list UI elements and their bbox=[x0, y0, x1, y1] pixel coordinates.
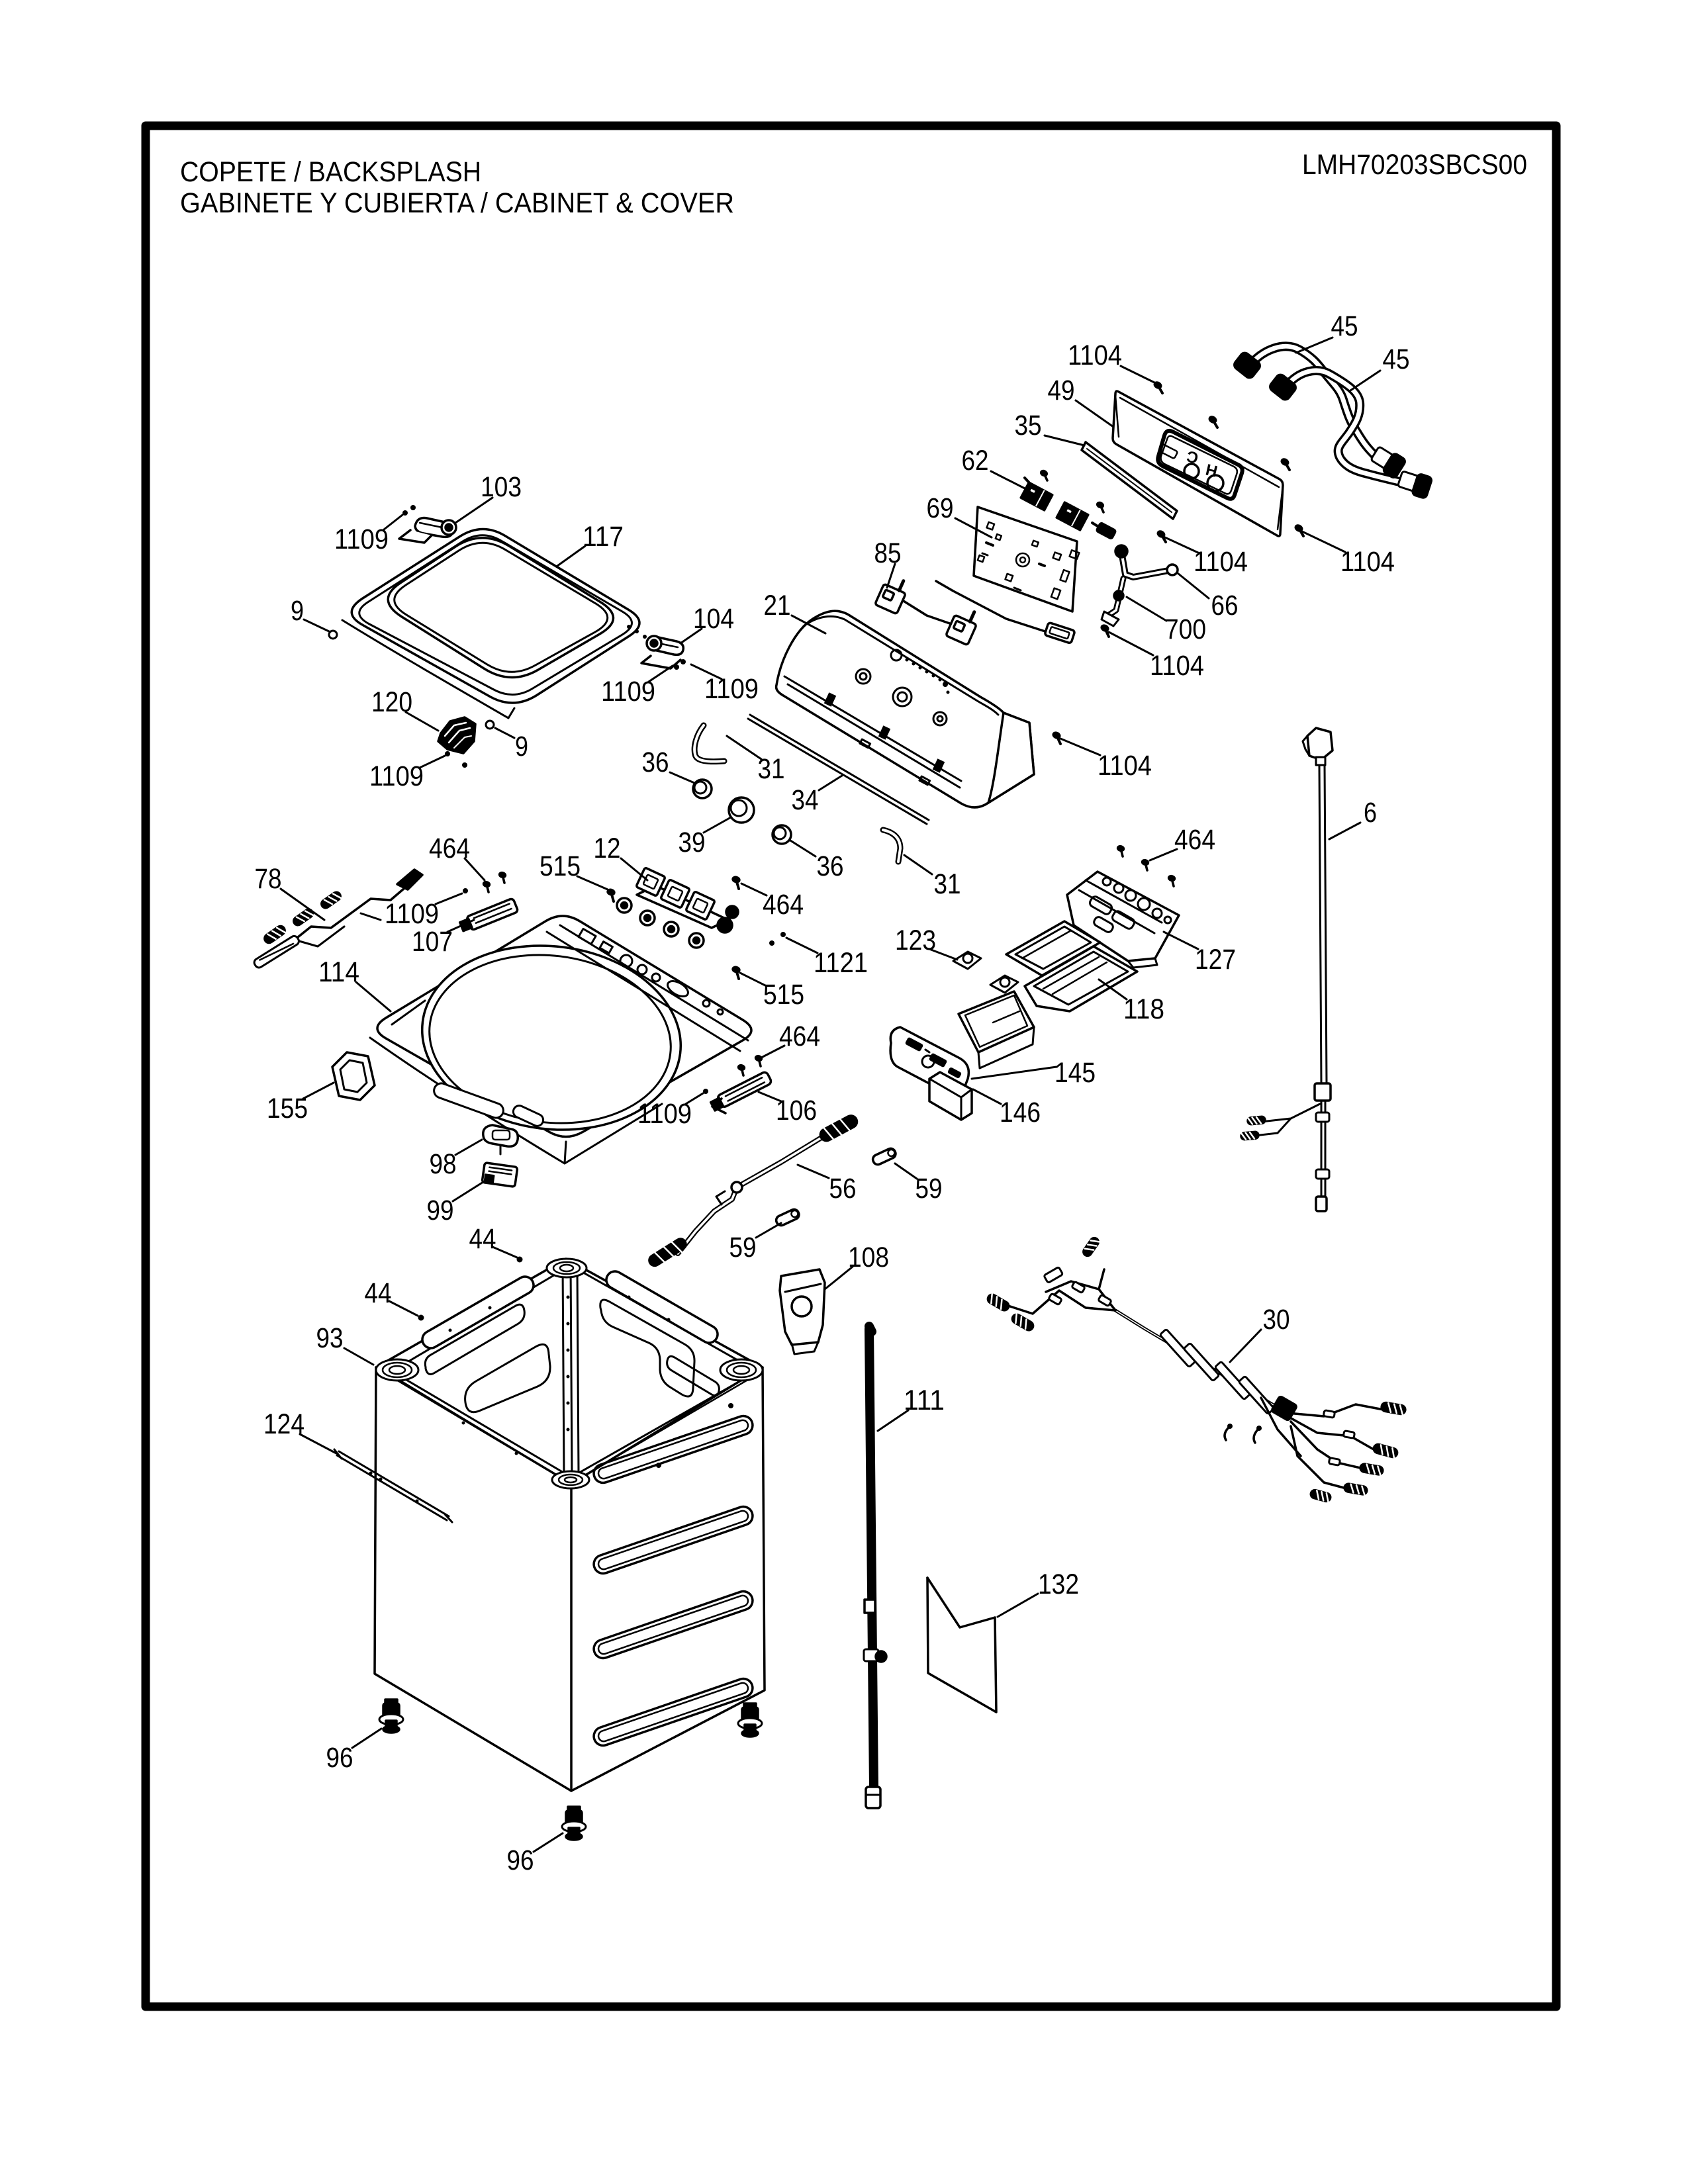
svg-text:132: 132 bbox=[1038, 1569, 1079, 1600]
svg-text:515: 515 bbox=[763, 979, 804, 1011]
svg-text:464: 464 bbox=[1174, 824, 1215, 856]
svg-text:78: 78 bbox=[255, 863, 282, 895]
svg-text:464: 464 bbox=[429, 833, 470, 864]
svg-text:59: 59 bbox=[729, 1232, 757, 1263]
svg-text:LMH70203SBCS00: LMH70203SBCS00 bbox=[1302, 149, 1527, 181]
svg-text:45: 45 bbox=[1383, 343, 1410, 375]
svg-text:9: 9 bbox=[291, 595, 304, 627]
svg-text:85: 85 bbox=[874, 537, 902, 569]
svg-text:21: 21 bbox=[764, 590, 791, 621]
svg-text:56: 56 bbox=[829, 1173, 857, 1205]
svg-text:44: 44 bbox=[365, 1277, 392, 1309]
svg-text:96: 96 bbox=[326, 1742, 353, 1774]
svg-text:44: 44 bbox=[469, 1223, 496, 1255]
svg-text:1104: 1104 bbox=[1150, 650, 1204, 682]
svg-text:114: 114 bbox=[318, 956, 359, 988]
svg-text:1121: 1121 bbox=[814, 947, 868, 979]
svg-text:98: 98 bbox=[430, 1148, 457, 1180]
svg-text:34: 34 bbox=[792, 784, 819, 816]
svg-text:1104: 1104 bbox=[1098, 750, 1152, 782]
svg-text:62: 62 bbox=[962, 445, 989, 477]
svg-text:106: 106 bbox=[776, 1095, 817, 1126]
svg-text:1104: 1104 bbox=[1194, 546, 1248, 578]
svg-text:1104: 1104 bbox=[1068, 340, 1122, 371]
svg-text:1109: 1109 bbox=[704, 673, 759, 705]
svg-text:1109: 1109 bbox=[601, 676, 655, 707]
svg-text:66: 66 bbox=[1211, 590, 1239, 621]
svg-text:96: 96 bbox=[507, 1844, 534, 1876]
svg-text:GABINETE Y CUBIERTA / CABINET: GABINETE Y CUBIERTA / CABINET & COVER bbox=[180, 187, 734, 219]
svg-text:1104: 1104 bbox=[1340, 546, 1395, 578]
svg-text:COPETE / BACKSPLASH: COPETE / BACKSPLASH bbox=[180, 156, 481, 188]
svg-text:36: 36 bbox=[817, 850, 844, 882]
svg-text:93: 93 bbox=[316, 1322, 344, 1354]
svg-text:9: 9 bbox=[515, 731, 528, 762]
svg-text:107: 107 bbox=[412, 926, 453, 958]
svg-text:127: 127 bbox=[1195, 944, 1236, 976]
svg-text:36: 36 bbox=[642, 747, 669, 778]
svg-text:31: 31 bbox=[934, 868, 961, 900]
svg-text:1109: 1109 bbox=[637, 1098, 692, 1130]
svg-text:1109: 1109 bbox=[385, 898, 439, 930]
svg-text:464: 464 bbox=[763, 889, 804, 921]
svg-text:123: 123 bbox=[895, 925, 936, 956]
svg-text:155: 155 bbox=[267, 1093, 308, 1124]
svg-text:146: 146 bbox=[1000, 1097, 1041, 1128]
svg-text:103: 103 bbox=[481, 471, 522, 503]
svg-text:35: 35 bbox=[1015, 410, 1042, 441]
svg-text:1109: 1109 bbox=[334, 523, 389, 555]
svg-text:111: 111 bbox=[904, 1385, 945, 1416]
svg-text:31: 31 bbox=[758, 753, 785, 785]
svg-text:6: 6 bbox=[1364, 797, 1377, 829]
svg-text:99: 99 bbox=[427, 1195, 454, 1226]
svg-text:12: 12 bbox=[594, 833, 621, 864]
svg-text:515: 515 bbox=[539, 850, 581, 882]
svg-text:1109: 1109 bbox=[369, 760, 424, 792]
svg-text:145: 145 bbox=[1055, 1057, 1096, 1089]
svg-text:30: 30 bbox=[1263, 1304, 1290, 1336]
svg-text:700: 700 bbox=[1165, 614, 1206, 645]
svg-text:45: 45 bbox=[1331, 310, 1358, 342]
svg-text:117: 117 bbox=[583, 521, 624, 553]
svg-text:49: 49 bbox=[1048, 375, 1075, 406]
svg-text:39: 39 bbox=[679, 827, 706, 858]
svg-text:124: 124 bbox=[263, 1408, 305, 1440]
svg-text:69: 69 bbox=[927, 492, 954, 524]
svg-text:59: 59 bbox=[915, 1173, 943, 1205]
svg-text:108: 108 bbox=[848, 1242, 889, 1273]
svg-text:118: 118 bbox=[1123, 993, 1164, 1025]
svg-text:464: 464 bbox=[779, 1021, 820, 1052]
